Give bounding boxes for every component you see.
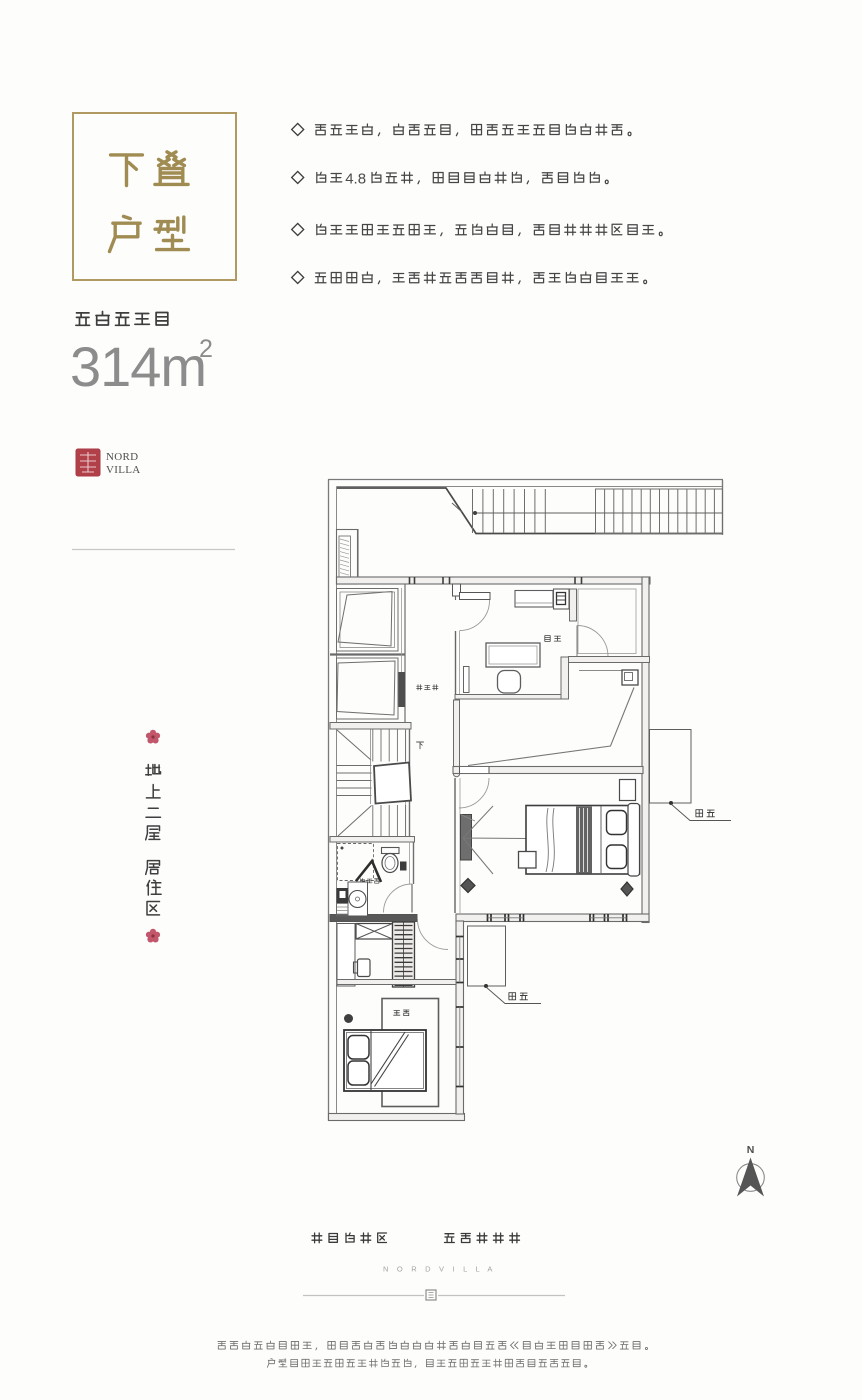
svg-text:314m: 314m	[70, 335, 206, 398]
svg-text:VILLA: VILLA	[106, 464, 141, 476]
svg-text:N O R D V I L L A: N O R D V I L L A	[383, 1265, 496, 1274]
svg-text:4.8: 4.8	[345, 171, 366, 188]
svg-text:NORD: NORD	[106, 451, 138, 463]
svg-text:2: 2	[199, 335, 213, 363]
svg-text:N: N	[747, 1144, 755, 1156]
